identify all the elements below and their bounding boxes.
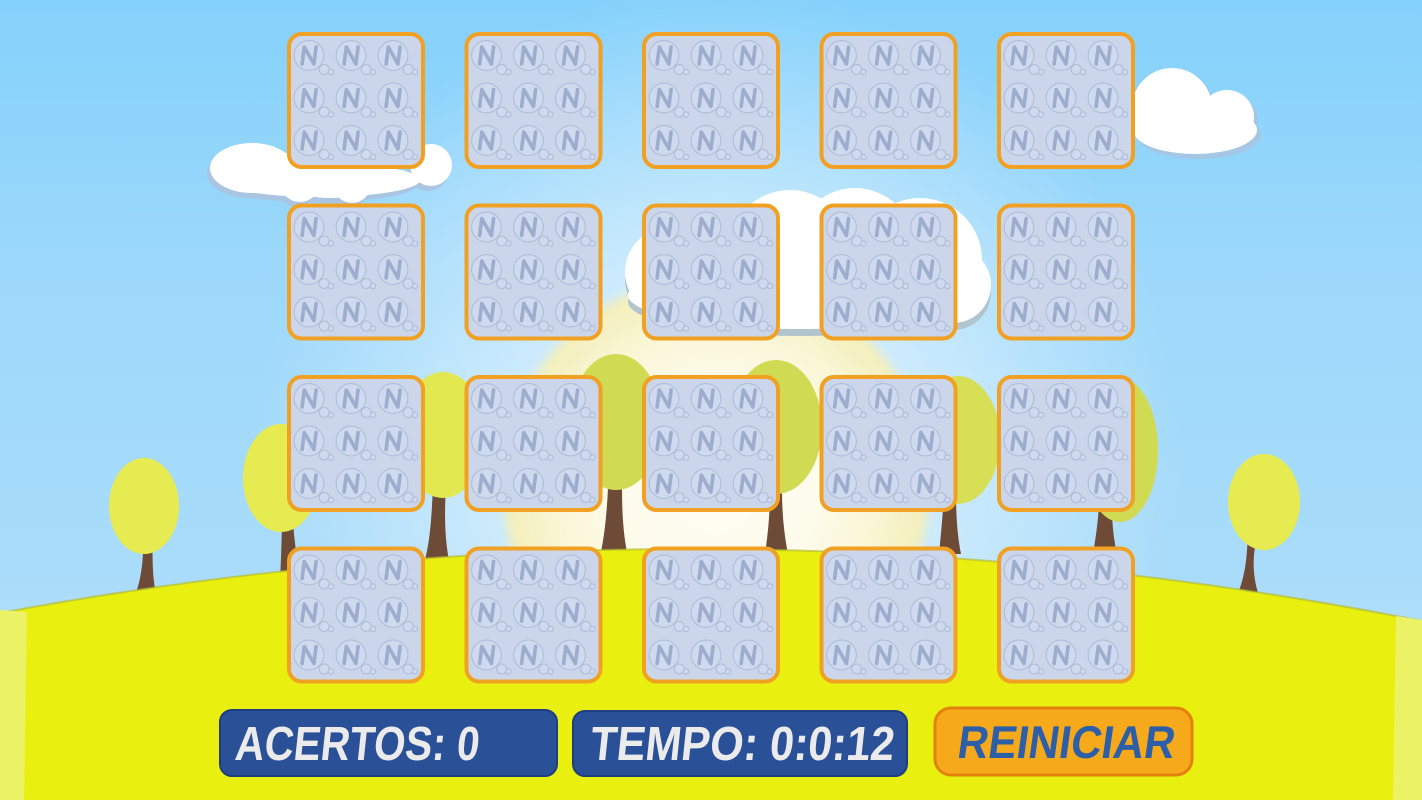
svg-text:TEMPO: 0:0:12: TEMPO: 0:0:12	[588, 717, 898, 771]
svg-text:ACERTOS: 0: ACERTOS: 0	[233, 717, 483, 771]
svg-text:REINICIAR: REINICIAR	[955, 716, 1179, 768]
